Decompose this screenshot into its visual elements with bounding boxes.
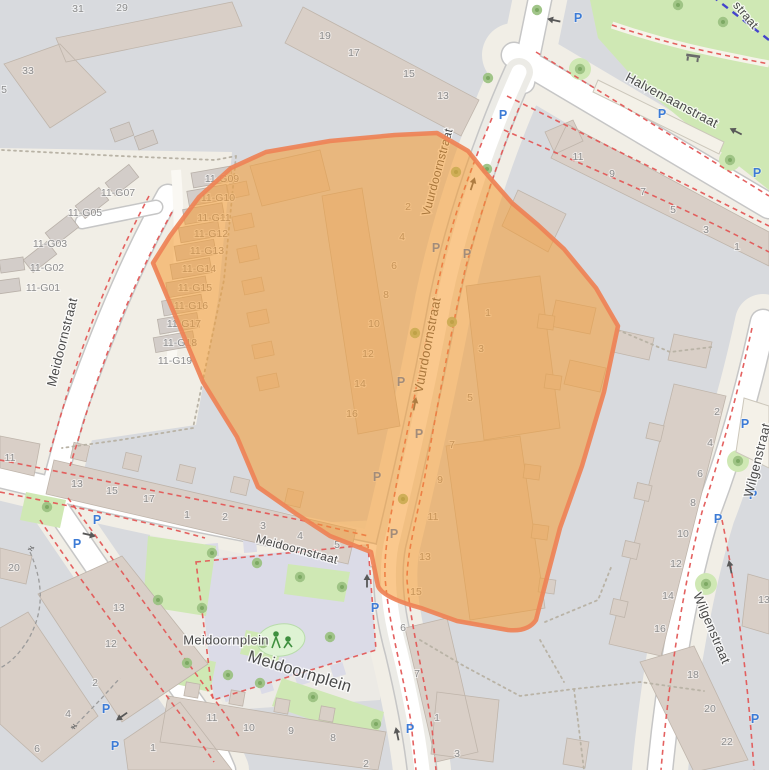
- house-number: 6: [400, 622, 406, 634]
- building-part: [646, 423, 664, 442]
- house-number: 14: [662, 590, 674, 602]
- house-number: 9: [288, 725, 294, 737]
- tree-icon-center: [486, 76, 490, 80]
- house-number: 13: [71, 478, 83, 490]
- house-number: 17: [348, 47, 360, 59]
- parking-icon: P: [111, 739, 119, 753]
- house-number: 33: [22, 65, 34, 77]
- house-number: 2: [363, 758, 369, 770]
- house-number: 10: [243, 722, 255, 734]
- house-number: 3: [703, 224, 709, 236]
- tree-icon-center: [185, 661, 189, 665]
- tree-icon-center: [255, 561, 259, 565]
- map-viewport: ≠≠ PPPPPPPPPPPPPPPPPPPP 3129335191715131…: [0, 0, 769, 770]
- tree-icon-center: [258, 681, 262, 685]
- house-number: 11-G19: [158, 355, 192, 367]
- tree-icon-center: [210, 551, 214, 555]
- parking-icon: P: [499, 108, 507, 122]
- tree-icon-center: [340, 585, 344, 589]
- house-number: 12: [670, 558, 682, 570]
- parking-icon: P: [741, 417, 749, 431]
- house-number: 5: [670, 204, 676, 216]
- building-part: [0, 257, 25, 273]
- parking-icon: P: [102, 702, 110, 716]
- house-number: 11: [5, 452, 16, 464]
- house-number: 19: [319, 30, 331, 42]
- house-number: 11: [207, 712, 218, 724]
- house-number: 20: [704, 703, 716, 715]
- house-number: 4: [297, 530, 303, 542]
- house-number: 4: [65, 708, 71, 720]
- parking-icon: P: [751, 712, 759, 726]
- tree-icon-center: [156, 598, 160, 602]
- building-part: [319, 706, 335, 722]
- tree-icon-center: [721, 20, 725, 24]
- street-name-label: Meidoornplein: [183, 633, 269, 648]
- parking-icon: P: [93, 513, 101, 527]
- parking-icon: P: [73, 537, 81, 551]
- parking-icon: P: [658, 107, 666, 121]
- house-number: 2: [222, 511, 228, 523]
- house-number: 20: [8, 562, 20, 574]
- house-number: 15: [403, 68, 415, 80]
- house-number: 5: [1, 84, 7, 96]
- tree-icon-center: [226, 673, 230, 677]
- house-number: 3: [454, 748, 460, 760]
- house-number: 15: [106, 485, 118, 497]
- map-canvas[interactable]: ≠≠ PPPPPPPPPPPPPPPPPPPP 3129335191715131…: [0, 0, 769, 770]
- house-number: 1: [184, 509, 190, 521]
- house-number: 8: [690, 497, 696, 509]
- house-number: 7: [414, 668, 420, 680]
- building-part: [622, 541, 640, 560]
- house-number: 1: [434, 712, 440, 724]
- house-number: 11-G03: [33, 238, 67, 250]
- building-part: [230, 476, 249, 495]
- house-number: 10: [677, 528, 689, 540]
- house-number: 17: [143, 493, 155, 505]
- tree-icon-center: [311, 695, 315, 699]
- building-part: [634, 483, 652, 502]
- house-number: 11-G01: [26, 282, 60, 294]
- tree-icon-center: [45, 505, 49, 509]
- house-number: 16: [654, 623, 666, 635]
- house-number: 1: [150, 742, 156, 754]
- tree-icon-center: [578, 67, 582, 71]
- house-number: 6: [697, 468, 703, 480]
- house-number: 11-G05: [68, 207, 102, 219]
- house-number: 8: [330, 732, 336, 744]
- parking-icon: P: [574, 11, 582, 25]
- house-number: 31: [72, 3, 84, 15]
- tree-icon-center: [374, 722, 378, 726]
- tree-icon-center: [676, 3, 680, 7]
- house-number: 3: [260, 520, 266, 532]
- parking-icon: P: [371, 601, 379, 615]
- tree-icon-center: [736, 459, 740, 463]
- tree-icon-center: [704, 582, 708, 586]
- building-part: [122, 452, 141, 471]
- house-number: 12: [105, 638, 117, 650]
- parking-icon: P: [714, 512, 722, 526]
- house-number: 7: [640, 186, 646, 198]
- house-number: 2: [92, 677, 98, 689]
- building-part: [610, 599, 628, 618]
- house-number: 29: [116, 2, 128, 14]
- house-number: 1: [734, 241, 740, 253]
- building-part: [274, 698, 290, 714]
- house-number: 2: [714, 406, 720, 418]
- building-part: [176, 464, 195, 483]
- house-number: 18: [687, 669, 699, 681]
- parking-icon: P: [406, 722, 414, 736]
- tree-icon-center: [298, 575, 302, 579]
- tree-icon-center: [328, 635, 332, 639]
- house-number: 11-G07: [101, 187, 135, 199]
- house-number: 4: [707, 437, 713, 449]
- house-number: 13: [437, 90, 449, 102]
- parking-icon: P: [753, 166, 761, 180]
- house-number: 13: [758, 594, 769, 606]
- house-number: 13: [113, 602, 125, 614]
- tree-icon-center: [535, 8, 539, 12]
- tree-icon-center: [728, 158, 732, 162]
- house-number: 6: [34, 743, 40, 755]
- building-part: [184, 682, 200, 698]
- house-number: 11: [573, 151, 584, 163]
- house-number: 9: [609, 168, 615, 180]
- tree-icon-center: [200, 606, 204, 610]
- house-number: 22: [721, 736, 733, 748]
- house-number: 11-G02: [30, 262, 64, 274]
